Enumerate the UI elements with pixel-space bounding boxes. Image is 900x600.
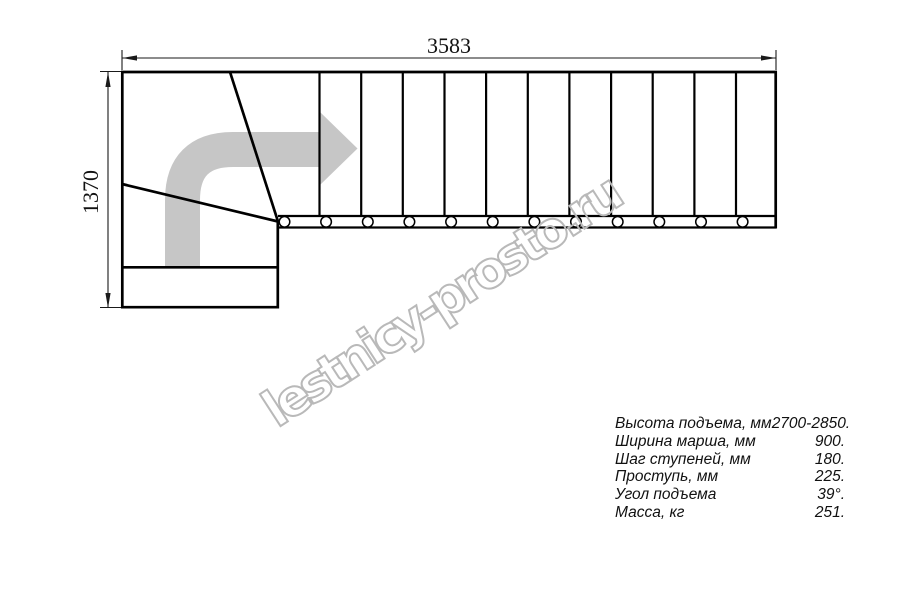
spec-label: Угол подъема <box>615 486 716 504</box>
spec-row-height: Высота подъема, мм 2700-2850. <box>615 415 845 433</box>
baluster-post <box>487 217 498 228</box>
baluster-post <box>696 217 707 228</box>
spec-label: Масса, кг <box>615 504 684 522</box>
watermark-text: lestnicy-prosto.ru <box>252 164 631 438</box>
spec-label: Ширина марша, мм <box>615 433 756 451</box>
spec-label: Проступь, мм <box>615 468 718 486</box>
spec-table: Высота подъема, мм 2700-2850. Ширина мар… <box>615 415 845 522</box>
baluster-post <box>321 217 332 228</box>
spec-label: Шаг ступеней, мм <box>615 451 751 469</box>
stair-plan-drawing: lestnicy-prosto.ru 3583 1370 Высота подъ… <box>0 0 900 600</box>
dimension-arrow-bottom <box>105 293 110 308</box>
baluster-post <box>363 217 374 228</box>
spec-value: 39°. <box>817 486 845 504</box>
dimension-height-label: 1370 <box>78 147 104 237</box>
spec-value: 2700-2850. <box>772 415 850 433</box>
spec-row-tread: Проступь, мм 225. <box>615 468 845 486</box>
spec-label: Высота подъема, мм <box>615 415 772 433</box>
spec-value: 900. <box>815 433 845 451</box>
dimension-arrow-right <box>761 55 776 60</box>
direction-arrow-shaft <box>183 150 322 267</box>
dimension-width-label: 3583 <box>404 33 494 59</box>
direction-arrow-icon <box>183 112 358 266</box>
spec-row-angle: Угол подъема 39°. <box>615 486 845 504</box>
riser-lines <box>320 72 737 216</box>
baluster-post <box>654 217 665 228</box>
spec-row-step-rise: Шаг ступеней, мм 180. <box>615 451 845 469</box>
spec-value: 225. <box>815 468 845 486</box>
spec-value: 251. <box>815 504 845 522</box>
dimension-arrow-top <box>105 72 110 87</box>
spec-row-flight-width: Ширина марша, мм 900. <box>615 433 845 451</box>
baluster-post <box>446 217 457 228</box>
spec-value: 180. <box>815 451 845 469</box>
direction-arrow-head <box>320 112 358 185</box>
dimension-arrow-left <box>122 55 137 60</box>
baluster-post <box>404 217 415 228</box>
baluster-post <box>279 217 290 228</box>
baluster-post <box>737 217 748 228</box>
spec-row-mass: Масса, кг 251. <box>615 504 845 522</box>
